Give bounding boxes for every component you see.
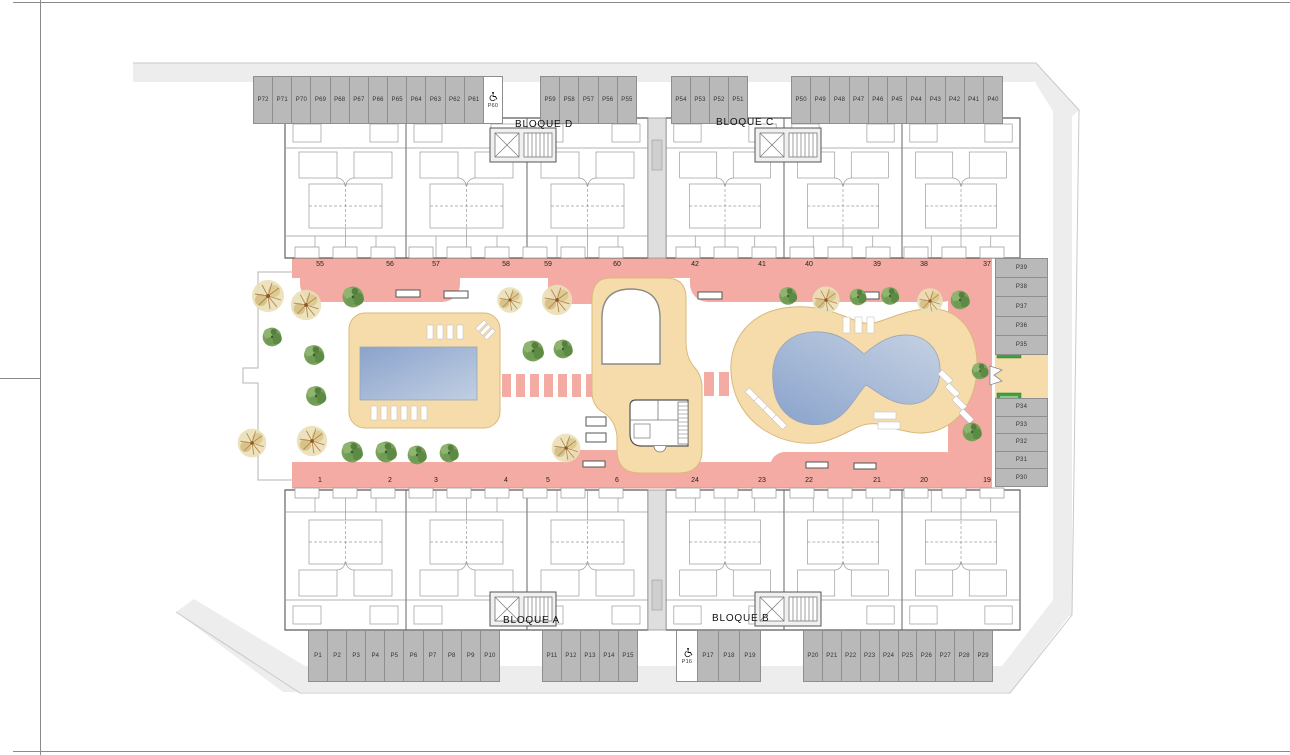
parking-stall: P5: [384, 630, 404, 682]
parking-stall: P29: [973, 630, 993, 682]
parking-stall: P40: [983, 76, 1003, 124]
parking-stall: P21: [822, 630, 842, 682]
parking-stall: P17: [697, 630, 719, 682]
building-block-a: [285, 490, 648, 630]
stall-label: P60: [488, 103, 498, 109]
parking-stall-accessible: P60: [483, 76, 503, 124]
terrace-number: 38: [915, 261, 933, 268]
tree-icon: [917, 288, 943, 314]
parking-stall: P1: [308, 630, 328, 682]
block-label-a: BLOQUE A: [503, 615, 560, 626]
parking-stall: P25: [898, 630, 918, 682]
parking-stall-accessible: P16: [676, 630, 698, 682]
parking-stall: P46: [868, 76, 888, 124]
parking-stall: P71: [272, 76, 292, 124]
terrace-number: 2: [381, 477, 399, 484]
terrace-number: 58: [497, 261, 515, 268]
left-pool: [360, 347, 477, 400]
building-block-b: [666, 490, 1020, 630]
terrace-number: 56: [381, 261, 399, 268]
tree-icon: [554, 340, 573, 359]
parking-stall: P68: [330, 76, 350, 124]
terrace-number: 24: [686, 477, 704, 484]
parking-stall: P38: [995, 277, 1048, 297]
parking-stall: P69: [310, 76, 330, 124]
parking-stall: P64: [406, 76, 426, 124]
parking-stall: P26: [916, 630, 936, 682]
parking-stall: P14: [599, 630, 619, 682]
parking-stall: P30: [995, 468, 1048, 487]
terrace-number: 39: [868, 261, 886, 268]
tree-icon: [523, 341, 544, 362]
parking-stall: P32: [995, 433, 1048, 452]
stall-label: P16: [682, 659, 692, 665]
parking-stall: P66: [368, 76, 388, 124]
tree-icon: [238, 429, 267, 458]
parking-stall: P72: [253, 76, 273, 124]
parking-stall: P33: [995, 416, 1048, 435]
parking-stall: P65: [387, 76, 407, 124]
parking-group-right-lower: P34 P33 P32 P31 P30: [995, 398, 1048, 487]
terrace-number: 1: [311, 477, 329, 484]
parking-stall: P18: [718, 630, 740, 682]
tree-icon: [263, 328, 282, 347]
parking-stall: P7: [423, 630, 443, 682]
parking-stall: P49: [810, 76, 830, 124]
arch-court: [602, 289, 660, 364]
parking-stall: P31: [995, 451, 1048, 470]
parking-group-bottom-right: P20 P21 P22 P23 P24 P25 P26 P27 P28 P29: [803, 630, 993, 682]
tree-icon: [304, 345, 324, 365]
tree-icon: [440, 444, 459, 463]
building-block-d: [285, 118, 648, 258]
building-block-c: [666, 118, 1020, 258]
parking-stall: P42: [945, 76, 965, 124]
wheelchair-icon: [682, 647, 693, 658]
parking-stall: P35: [995, 335, 1048, 355]
block-label-b: BLOQUE B: [712, 613, 770, 624]
parking-stall: P22: [841, 630, 861, 682]
parking-stall: P36: [995, 316, 1048, 336]
tree-icon: [291, 290, 321, 320]
tree-icon: [812, 286, 839, 313]
tree-icon: [297, 426, 327, 456]
parking-stall: P9: [461, 630, 481, 682]
parking-stall: P27: [935, 630, 955, 682]
terrace-number: 41: [753, 261, 771, 268]
parking-stall: P45: [887, 76, 907, 124]
terrace-number: 3: [427, 477, 445, 484]
parking-stall: P70: [291, 76, 311, 124]
parking-stall: P47: [849, 76, 869, 124]
parking-stall: P59: [540, 76, 560, 124]
amenity-building: [630, 400, 688, 452]
parking-stall: P20: [803, 630, 823, 682]
parking-stall: P41: [964, 76, 984, 124]
tree-icon: [552, 434, 581, 463]
parking-stall: P44: [906, 76, 926, 124]
terrace-number: 4: [497, 477, 515, 484]
terrace-number: 55: [311, 261, 329, 268]
terrace-number: 19: [978, 477, 996, 484]
terrace-number: 60: [608, 261, 626, 268]
terrace-number: 42: [686, 261, 704, 268]
parking-group-top-left: P72 P71 P70 P69 P68 P67 P66 P65 P64 P63 …: [253, 76, 503, 124]
terrace-number: 57: [427, 261, 445, 268]
tree-icon: [542, 285, 572, 315]
terrace-number: 23: [753, 477, 771, 484]
parking-stall: P10: [480, 630, 500, 682]
parking-group-top-right-b: P50 P49 P48 P47 P46 P45 P44 P43 P42 P41 …: [791, 76, 1003, 124]
parking-stall: P54: [671, 76, 691, 124]
parking-stall: P6: [403, 630, 423, 682]
parking-stall: P62: [445, 76, 465, 124]
tree-icon: [497, 287, 523, 313]
parking-stall: P2: [327, 630, 347, 682]
plan-drawing: [0, 0, 1290, 755]
parking-stall: P23: [860, 630, 880, 682]
parking-group-bottom-access: P16 P17 P18 P19: [676, 630, 761, 682]
parking-group-right-upper: P39 P38 P37 P36 P35: [995, 258, 1048, 355]
parking-stall: P63: [425, 76, 445, 124]
parking-stall: P15: [618, 630, 638, 682]
terrace-number: 22: [800, 477, 818, 484]
tree-icon: [376, 442, 397, 463]
parking-group-bottom-mid: P11 P12 P13 P14 P15: [542, 630, 638, 682]
tree-icon: [342, 442, 363, 463]
terrace-number: 37: [978, 261, 996, 268]
terrace-number: 5: [539, 477, 557, 484]
right-access-deck: [995, 353, 1048, 398]
parking-stall: P57: [578, 76, 598, 124]
terrace-number: 59: [539, 261, 557, 268]
parking-stall: P3: [346, 630, 366, 682]
terrace-number: 21: [868, 477, 886, 484]
parking-group-top-mid: P59 P58 P57 P56 P55: [540, 76, 637, 124]
block-label-c: BLOQUE C: [716, 117, 774, 128]
parking-stall: P67: [349, 76, 369, 124]
tree-icon: [252, 280, 284, 312]
terrace-number: 40: [800, 261, 818, 268]
tree-icon: [408, 446, 427, 465]
parking-stall: P34: [995, 398, 1048, 417]
terrace-number: 6: [608, 477, 626, 484]
parking-stall: P28: [954, 630, 974, 682]
block-label-d: BLOQUE D: [515, 119, 573, 130]
parking-stall: P12: [561, 630, 581, 682]
parking-stall: P37: [995, 296, 1048, 316]
wheelchair-icon: [487, 91, 498, 102]
parking-stall: P8: [442, 630, 462, 682]
parking-stall: P43: [925, 76, 945, 124]
parking-stall: P24: [879, 630, 899, 682]
parking-stall: P11: [542, 630, 562, 682]
parking-stall: P56: [598, 76, 618, 124]
parking-stall: P19: [739, 630, 761, 682]
parking-stall: P53: [690, 76, 710, 124]
parking-stall: P13: [580, 630, 600, 682]
site-plan: P72 P71 P70 P69 P68 P67 P66 P65 P64 P63 …: [0, 0, 1290, 755]
parking-stall: P50: [791, 76, 811, 124]
parking-stall: P55: [617, 76, 637, 124]
parking-stall: P58: [559, 76, 579, 124]
parking-stall: P48: [829, 76, 849, 124]
parking-group-bottom-left: P1 P2 P3 P4 P5 P6 P7 P8 P9 P10: [308, 630, 500, 682]
parking-stall: P61: [464, 76, 484, 124]
tree-icon: [306, 386, 326, 406]
parking-stall: P4: [365, 630, 385, 682]
terrace-number: 20: [915, 477, 933, 484]
parking-stall: P39: [995, 258, 1048, 278]
